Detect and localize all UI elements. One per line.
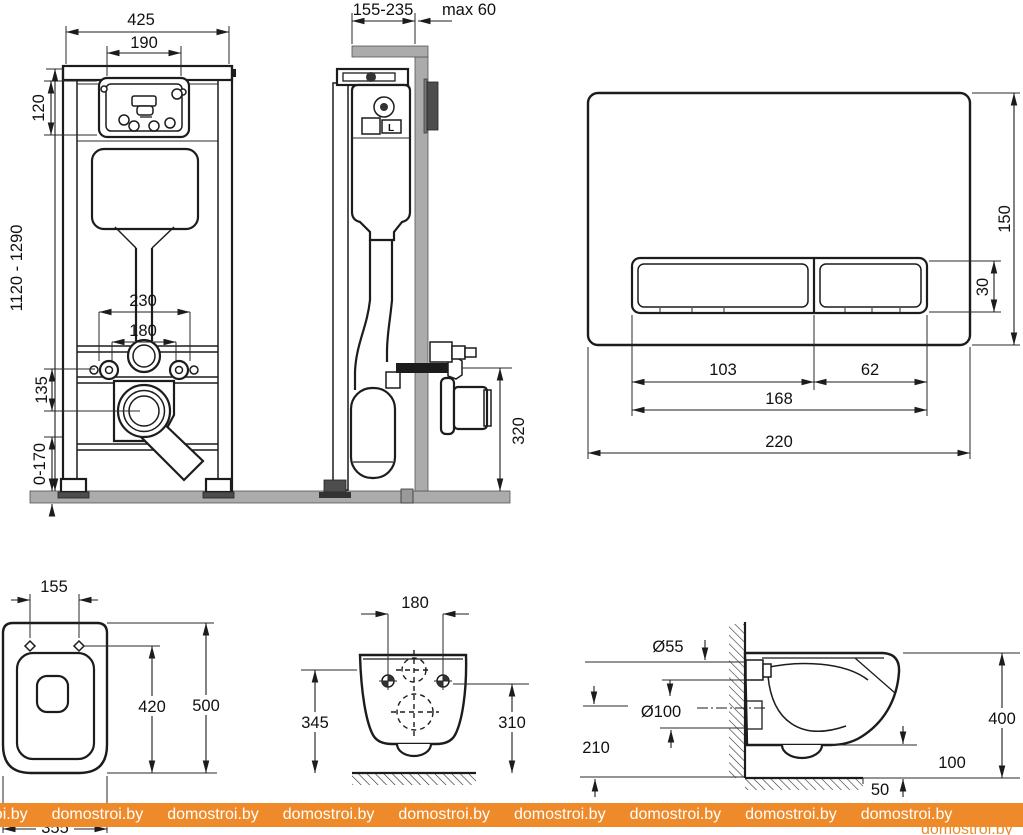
dim-buttons-width: 168 <box>632 390 927 410</box>
dim-button-height-label: 30 <box>974 278 992 296</box>
frame-front-view: 425 190 120 1120 - 1290 230 <box>8 11 236 514</box>
watermark-text: domostroi.by <box>283 806 375 824</box>
toilet-body-rear <box>360 655 466 744</box>
dim-hinge-holes-label: 155 <box>40 578 68 596</box>
dim-small-button-label: 62 <box>861 361 879 379</box>
dim-frame-height-label: 1120 - 1290 <box>8 225 26 312</box>
frame-foot-side <box>324 480 346 492</box>
bowl-underside <box>782 745 822 758</box>
dim-front-gap: 50 <box>863 778 889 799</box>
watermark-text: domostroi.by <box>514 806 606 824</box>
toilet-side-view: Ø55 Ø100 210 400 100 50 <box>574 622 1023 799</box>
top-rail <box>352 46 428 57</box>
trap <box>351 388 395 478</box>
dim-holes-depth-label: 420 <box>138 698 166 716</box>
dim-inlet-diameter-label: Ø55 <box>652 638 683 656</box>
dim-plate-width-label: 220 <box>765 433 793 451</box>
dim-outlet-diameter-label: Ø100 <box>641 703 681 721</box>
dim-holes-inner-label: 180 <box>129 322 157 340</box>
dim-holes-outer-label: 230 <box>129 292 157 310</box>
cistern-tank <box>92 149 198 229</box>
access-window <box>99 78 189 137</box>
floor-hatch-side <box>745 779 863 790</box>
watermark-text: domostroi.by <box>52 806 144 824</box>
wall-bracket <box>427 82 438 130</box>
dim-plate-height: 150 <box>972 93 1020 345</box>
dim-outlet-height2: 210 <box>574 686 618 797</box>
dim-buttons-width-label: 168 <box>765 390 793 408</box>
watermark-text: domostroi.by <box>921 821 1013 835</box>
frame-tab <box>232 69 236 77</box>
frame-side-view: L 155-235 <box>319 1 528 503</box>
watermark-text: domostroi.by <box>167 806 259 824</box>
watermark-text: domostroi.by <box>0 806 28 824</box>
watermark-text: domostroi.by <box>745 806 837 824</box>
dim-length-label: 500 <box>192 697 220 715</box>
dim-outlet-height-side-label: 210 <box>582 739 610 757</box>
dim-depth-label: 400 <box>988 710 1016 728</box>
dim-front-gap-label: 50 <box>871 781 889 799</box>
frame-foot-left <box>61 479 86 492</box>
flush-plate-view: 150 30 103 62 168 220 <box>588 93 1020 459</box>
watermark-text-corner: domostroi.by <box>921 821 1013 835</box>
dim-wall-max: max 60 <box>418 1 496 21</box>
frame-foot-right <box>206 479 231 492</box>
outlet-rod <box>396 363 448 373</box>
dim-outlet-height-label: 320 <box>510 417 528 445</box>
ground-hatch-rear <box>352 774 476 785</box>
outlet-connector <box>441 378 491 434</box>
dim-bolt-spacing-label: 180 <box>401 594 429 612</box>
frame-rail-side <box>333 83 348 490</box>
dim-plate-height-label: 150 <box>996 205 1014 233</box>
dim-drain-offset-label: 135 <box>33 376 51 404</box>
dim-frame-height: 1120 - 1290 <box>8 69 63 491</box>
dim-panel-height-label: 120 <box>30 94 48 122</box>
dim-wall-max-label: max 60 <box>442 1 496 19</box>
dim-height-right-label: 310 <box>498 714 526 732</box>
dim-outlet-diameter: Ø100 <box>628 701 694 748</box>
watermark-text: domostroi.by <box>630 806 722 824</box>
dim-tank-width-label: 190 <box>130 34 158 52</box>
toilet-rear-view: 180 345 310 <box>296 594 531 785</box>
button-frame <box>632 258 927 313</box>
dim-height-left: 345 <box>296 670 357 773</box>
watermark-bar: domostroi.by domostroi.by domostroi.by d… <box>0 803 1023 827</box>
floor-slab <box>30 491 510 503</box>
watermark-text: domostroi.by <box>398 806 490 824</box>
technical-drawing: 425 190 120 1120 - 1290 230 <box>0 0 1023 835</box>
dim-depth-range-label: 155-235 <box>353 1 414 19</box>
drain-bump <box>397 744 431 756</box>
dim-height-left-label: 345 <box>301 714 329 732</box>
dim-depth-range: 155-235 <box>352 1 415 44</box>
wall-hatch <box>729 624 745 778</box>
dim-overall-width-label: 425 <box>127 11 155 29</box>
dim-inlet-diameter: Ø55 <box>652 638 705 696</box>
dim-foot-range-label: 0-170 <box>31 443 49 485</box>
dim-large-button-label: 103 <box>709 361 737 379</box>
technical-drawing-page: 425 190 120 1120 - 1290 230 <box>0 0 1023 835</box>
toilet-top-view: 155 420 500 355 <box>3 578 228 835</box>
dim-rim-to-floor-label: 100 <box>938 754 966 772</box>
water-inlet-fitting <box>430 342 476 362</box>
valve-label: L <box>388 123 394 134</box>
